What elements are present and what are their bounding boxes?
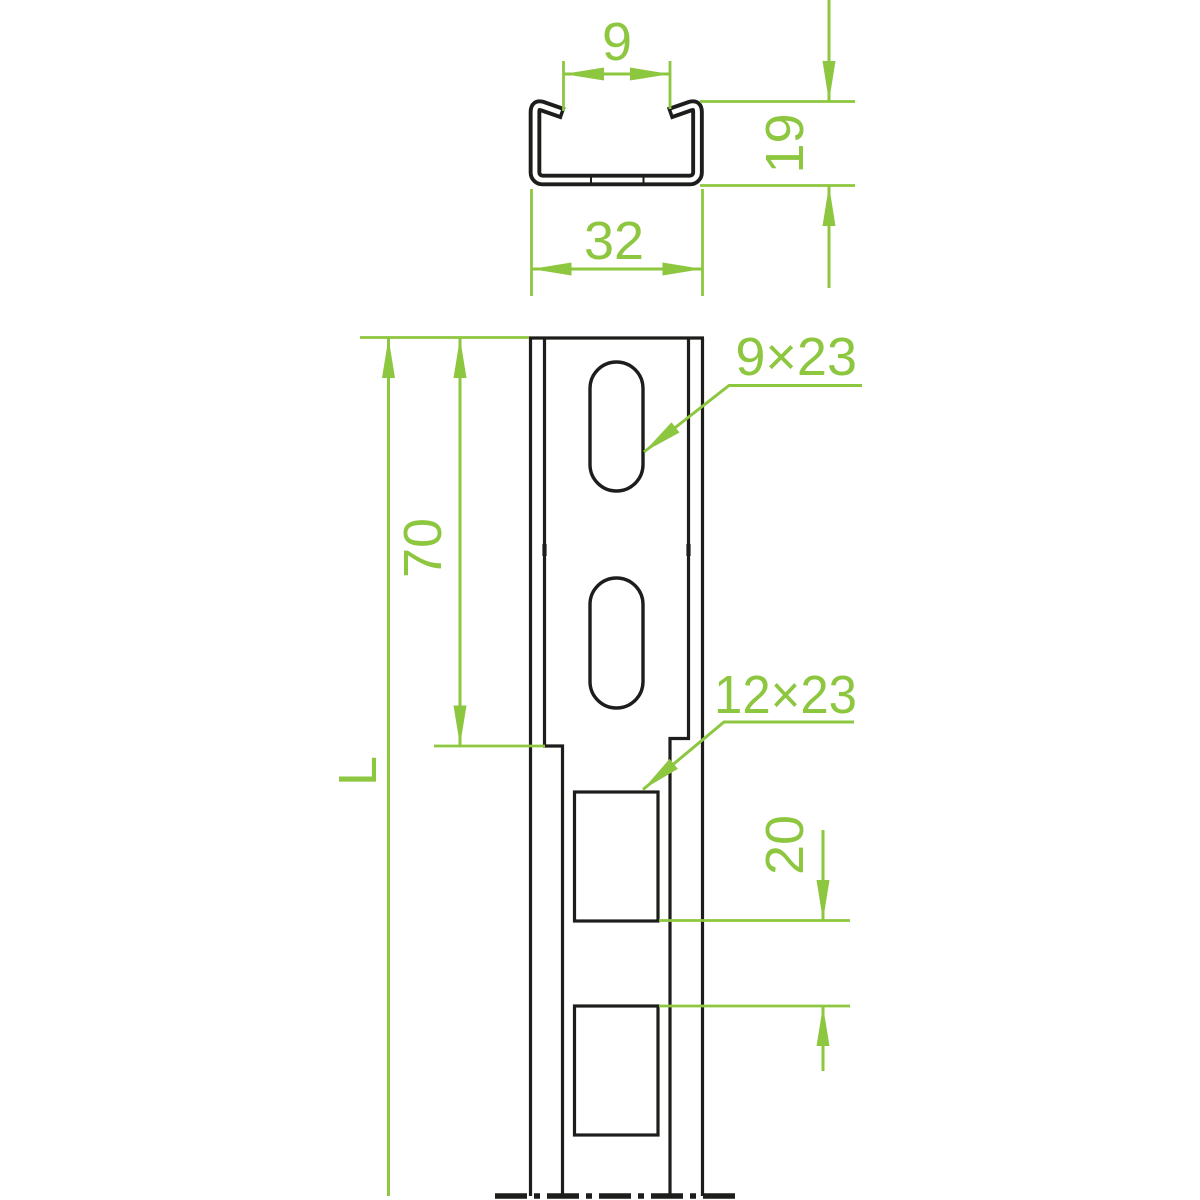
svg-text:32: 32 (584, 211, 644, 271)
svg-text:19: 19 (755, 113, 815, 173)
svg-text:9: 9 (602, 12, 632, 72)
svg-text:9×23: 9×23 (735, 327, 857, 387)
svg-text:12×23: 12×23 (714, 665, 857, 725)
svg-text:70: 70 (393, 518, 453, 578)
svg-text:20: 20 (755, 815, 815, 875)
svg-text:L: L (328, 756, 388, 786)
